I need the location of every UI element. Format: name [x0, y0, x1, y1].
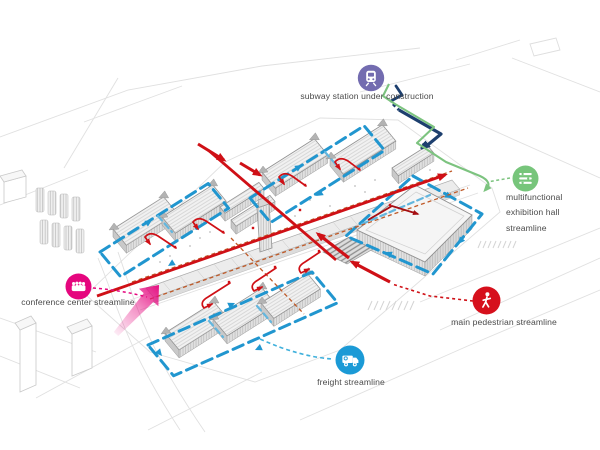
freight-streamline-label: freight streamline: [271, 377, 431, 389]
truck-icon: [335, 345, 365, 375]
train-icon: [357, 64, 385, 92]
subway-station-label: subway station under construction: [272, 91, 462, 103]
walking-person-icon: [472, 286, 501, 315]
conference-people-icon: [65, 273, 92, 300]
streamline-diagram: subway station under construction multif…: [0, 0, 600, 450]
exhibition-hall-icon: [512, 165, 539, 192]
main-pedestrian-streamline-label: main pedestrian streamline: [424, 317, 584, 329]
exhibition-hall-streamline-label: multifunctional exhibition hall streamli…: [506, 190, 586, 236]
conference-center-streamline-label: conference center streamline: [0, 297, 156, 309]
